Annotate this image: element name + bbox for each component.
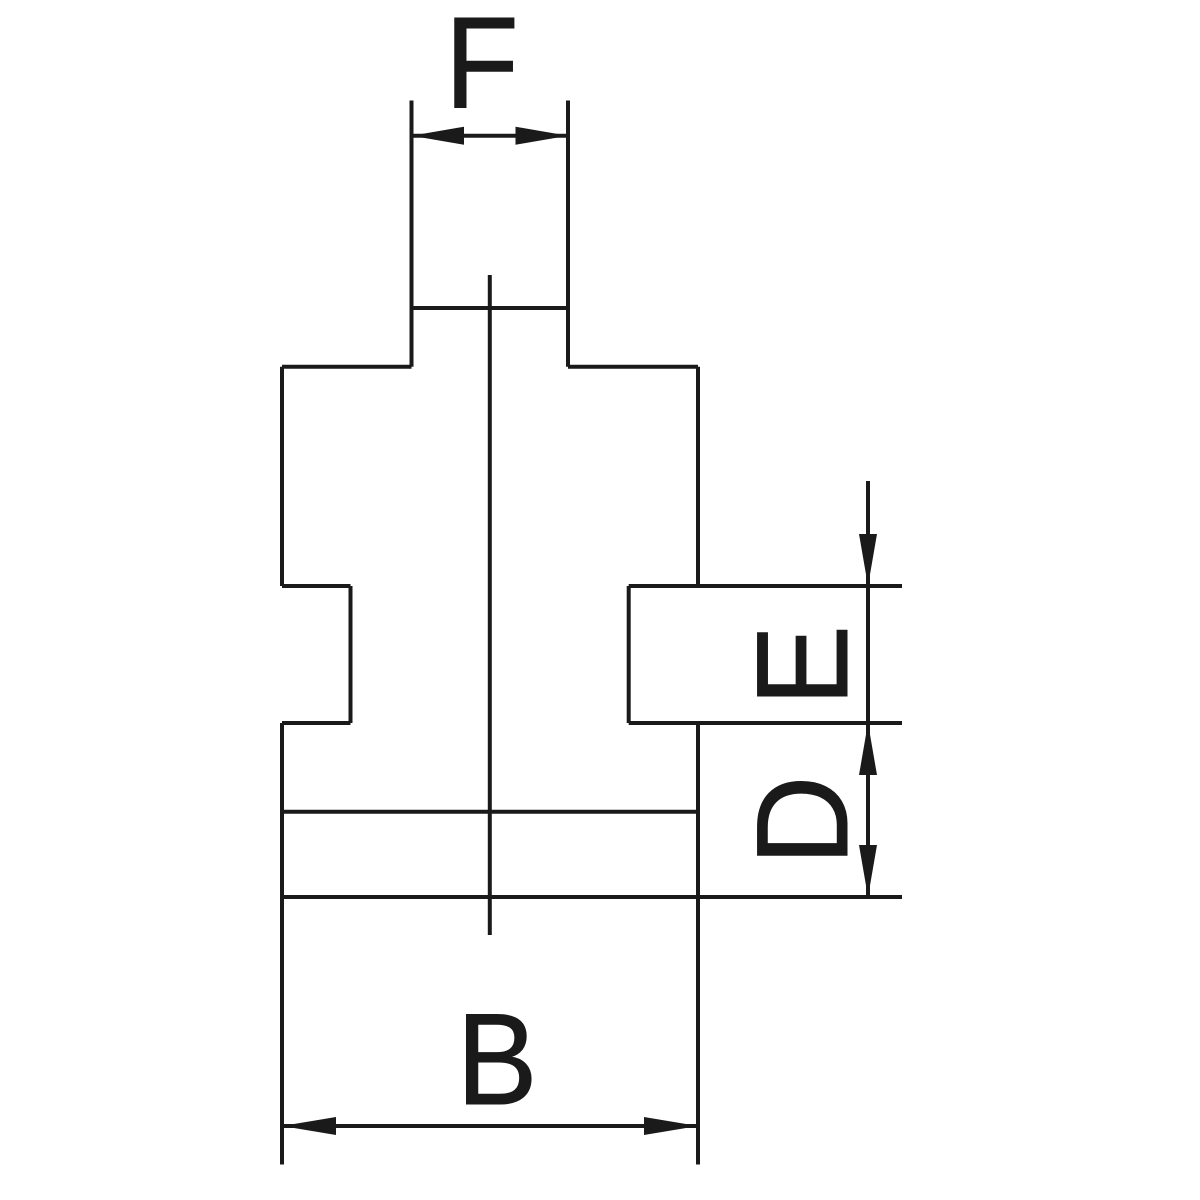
svg-text:B: B [457,986,538,1132]
svg-text:F: F [445,0,519,136]
svg-text:E: E [729,625,875,706]
svg-text:D: D [729,776,875,866]
